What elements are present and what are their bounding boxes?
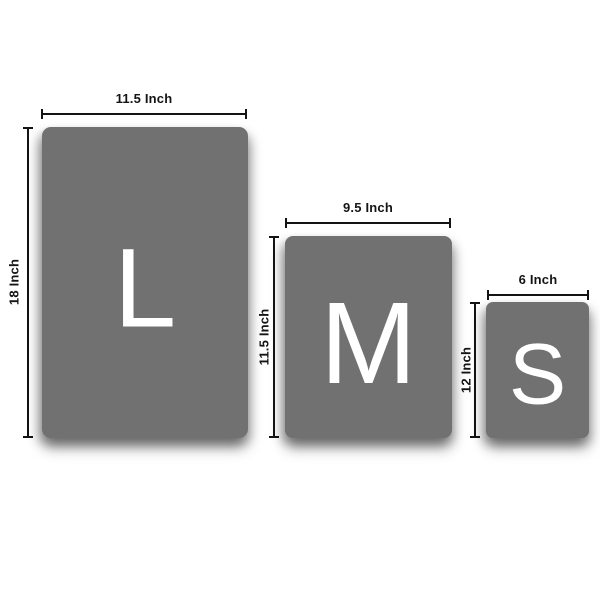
height-dimension-line-large (27, 127, 29, 438)
height-dimension-line-small (474, 302, 476, 438)
width-dimension-label-large: 11.5 Inch (41, 91, 247, 106)
height-dimension-label-small: 12 Inch (459, 347, 474, 393)
size-panel-small: S (486, 302, 589, 438)
size-comparison-diagram: 11.5 Inch 18 Inch L 9.5 Inch 11.5 Inch M… (0, 0, 600, 600)
height-dimension-label-large: 18 Inch (7, 259, 22, 305)
width-dimension-line-small (487, 294, 589, 296)
size-letter-large: L (114, 232, 176, 344)
width-dimension-line-medium (285, 222, 451, 224)
width-dimension-label-small: 6 Inch (487, 272, 589, 287)
size-letter-small: S (509, 331, 566, 417)
height-dimension-label-medium: 11.5 Inch (257, 309, 272, 366)
size-letter-medium: M (320, 285, 417, 401)
size-panel-medium: M (285, 236, 452, 438)
width-dimension-line-large (41, 113, 247, 115)
height-dimension-line-medium (273, 236, 275, 438)
size-panel-large: L (42, 127, 248, 438)
width-dimension-label-medium: 9.5 Inch (285, 200, 451, 215)
